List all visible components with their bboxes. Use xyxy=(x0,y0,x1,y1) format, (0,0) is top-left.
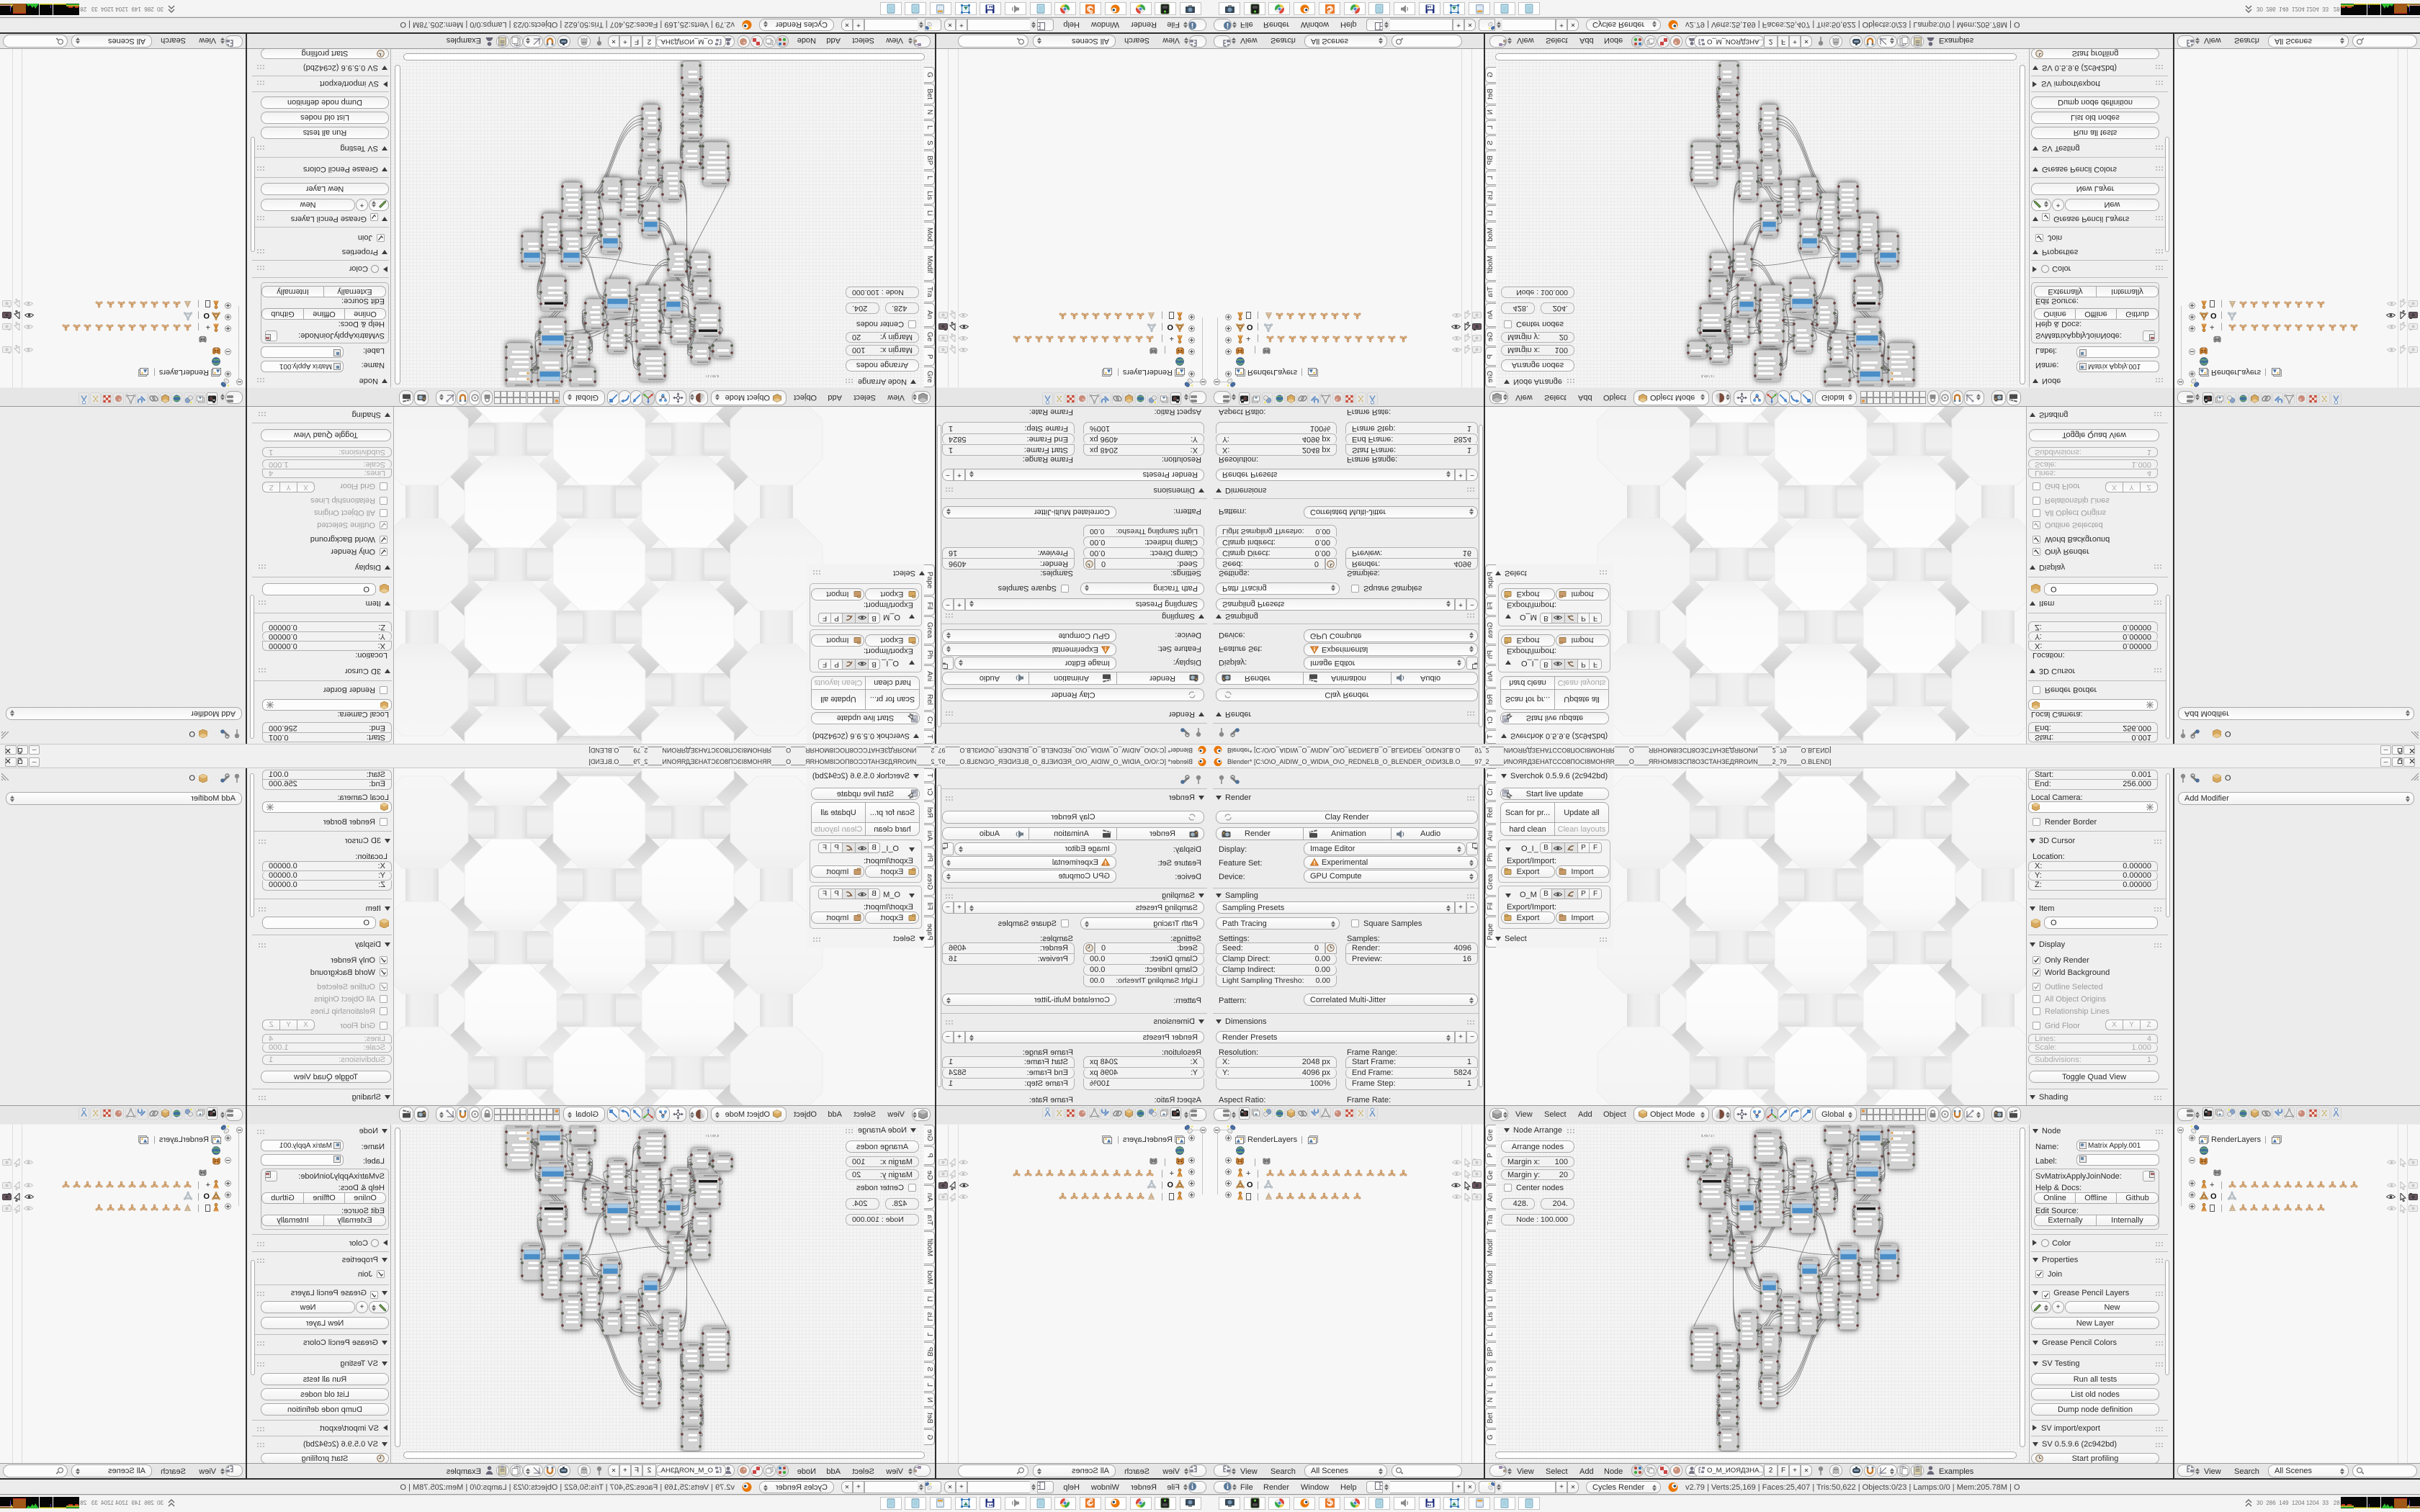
svg-text:64: 64 xyxy=(1428,5,1432,9)
svg-text:64: 64 xyxy=(989,5,993,9)
svg-text:64: 64 xyxy=(989,1503,993,1507)
svg-text:64: 64 xyxy=(1428,1503,1432,1507)
